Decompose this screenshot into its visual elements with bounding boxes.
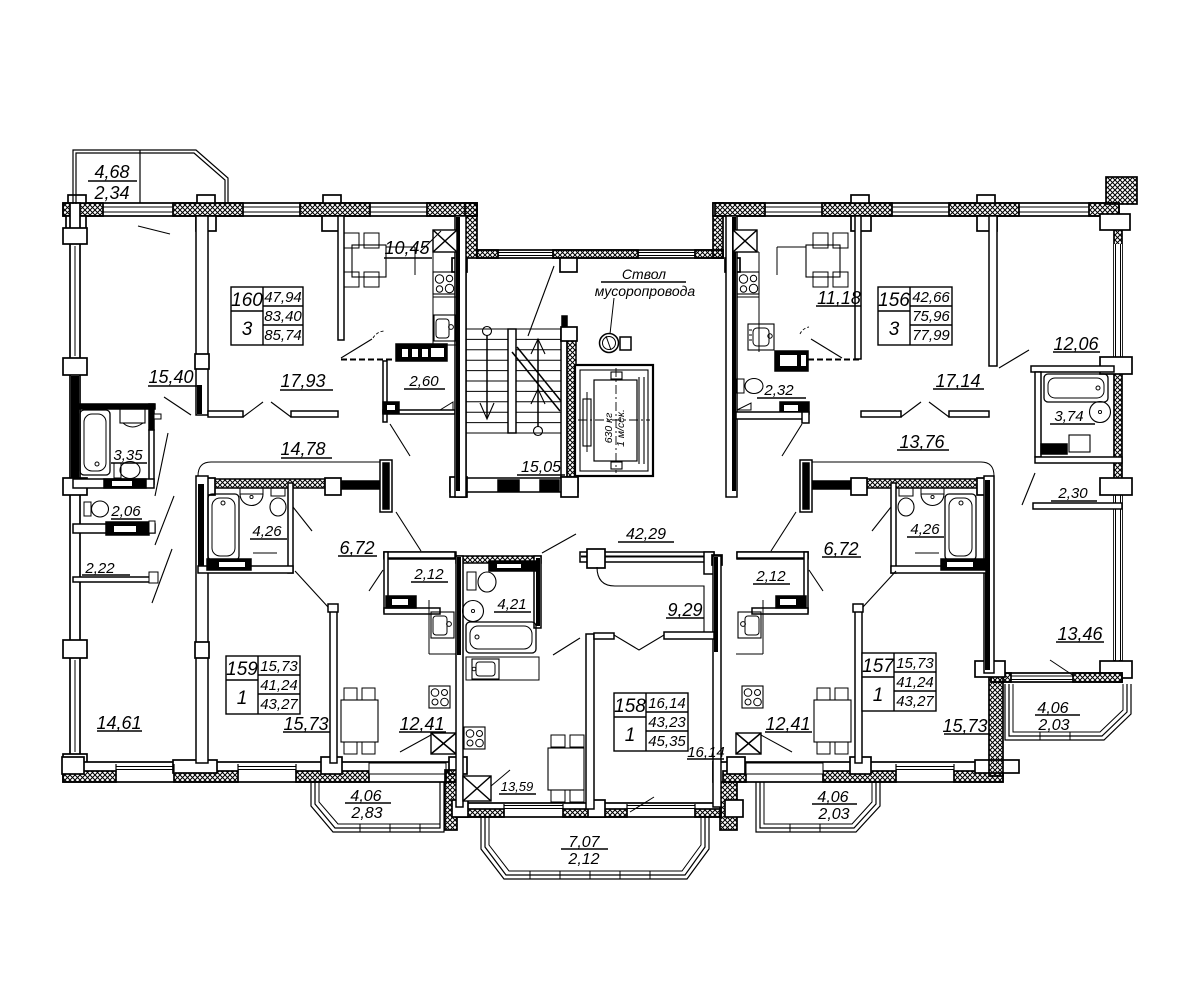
svg-text:6,72: 6,72 (823, 539, 858, 559)
svg-text:мусоропровода: мусоропровода (595, 283, 696, 299)
svg-text:47,94: 47,94 (264, 289, 302, 306)
svg-text:17,93: 17,93 (280, 371, 325, 391)
svg-text:13,46: 13,46 (1057, 624, 1103, 644)
svg-text:15,73: 15,73 (942, 716, 987, 736)
svg-text:4,68: 4,68 (94, 162, 129, 182)
svg-text:42,66: 42,66 (912, 289, 950, 306)
svg-text:4,26: 4,26 (252, 523, 282, 540)
svg-text:2,06: 2,06 (110, 503, 141, 520)
svg-text:2,12: 2,12 (567, 851, 599, 868)
svg-text:2,34: 2,34 (93, 183, 129, 203)
svg-text:85,74: 85,74 (264, 327, 302, 344)
svg-text:2,83: 2,83 (350, 805, 382, 822)
svg-text:13,59: 13,59 (501, 779, 534, 794)
svg-text:2,03: 2,03 (1037, 717, 1069, 734)
svg-text:4,26: 4,26 (910, 521, 940, 538)
svg-text:14,61: 14,61 (96, 713, 141, 733)
svg-text:1: 1 (625, 725, 636, 746)
svg-text:10,45: 10,45 (384, 238, 430, 258)
svg-text:1 м/сек.: 1 м/сек. (615, 409, 627, 447)
svg-text:159: 159 (226, 659, 258, 680)
svg-text:15,73: 15,73 (260, 658, 298, 675)
svg-text:2,30: 2,30 (1057, 485, 1088, 502)
svg-text:160: 160 (231, 290, 263, 311)
svg-text:1: 1 (873, 685, 884, 706)
svg-text:83,40: 83,40 (264, 308, 302, 325)
svg-text:9,29: 9,29 (667, 600, 702, 620)
svg-text:15,05: 15,05 (521, 459, 561, 476)
svg-text:41,24: 41,24 (260, 677, 298, 694)
svg-text:2,12: 2,12 (755, 568, 786, 585)
svg-text:158: 158 (614, 696, 646, 717)
svg-text:3: 3 (889, 319, 900, 340)
svg-text:75,96: 75,96 (912, 308, 950, 325)
svg-text:3: 3 (242, 319, 253, 340)
svg-text:13,76: 13,76 (899, 432, 945, 452)
svg-text:43,23: 43,23 (648, 714, 686, 731)
svg-text:3,35: 3,35 (113, 447, 143, 464)
svg-text:17,14: 17,14 (935, 371, 980, 391)
svg-text:41,24: 41,24 (896, 674, 934, 691)
svg-text:3,74: 3,74 (1054, 408, 1083, 425)
svg-text:2,03: 2,03 (817, 806, 849, 823)
svg-text:15,73: 15,73 (283, 714, 328, 734)
svg-text:1: 1 (237, 688, 248, 709)
svg-text:Ствол: Ствол (622, 266, 666, 282)
svg-text:11,18: 11,18 (817, 288, 861, 308)
svg-text:43,27: 43,27 (896, 693, 934, 710)
svg-text:2,12: 2,12 (413, 566, 444, 583)
svg-text:16,14: 16,14 (648, 695, 686, 712)
svg-text:156: 156 (878, 290, 910, 311)
svg-text:45,35: 45,35 (648, 733, 686, 750)
svg-text:2,60: 2,60 (408, 373, 439, 390)
svg-text:77,99: 77,99 (912, 327, 950, 344)
svg-text:12,41: 12,41 (399, 714, 444, 734)
svg-text:630 кг: 630 кг (603, 413, 615, 444)
svg-text:6,72: 6,72 (339, 538, 374, 558)
svg-text:15,73: 15,73 (896, 655, 934, 672)
svg-text:12,41: 12,41 (765, 714, 810, 734)
svg-text:14,78: 14,78 (280, 439, 325, 459)
svg-text:42,29: 42,29 (626, 526, 666, 543)
svg-text:2,32: 2,32 (763, 382, 794, 399)
svg-text:12,06: 12,06 (1053, 334, 1099, 354)
svg-text:43,27: 43,27 (260, 696, 298, 713)
svg-text:157: 157 (862, 656, 895, 677)
svg-text:4,21: 4,21 (497, 596, 526, 613)
svg-text:15,40: 15,40 (148, 367, 193, 387)
